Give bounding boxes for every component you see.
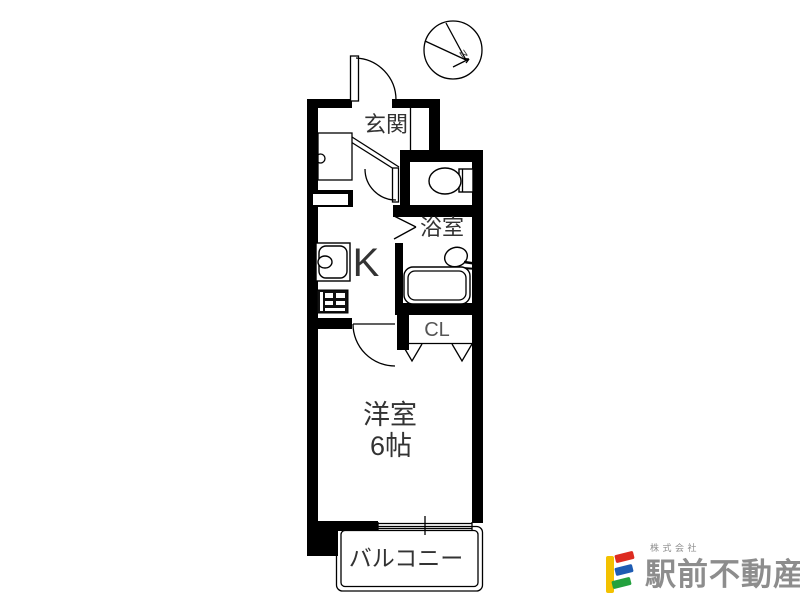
- entrance-step-line: [351, 137, 399, 171]
- room-door-arc: [353, 324, 395, 366]
- company-logo-mark: [606, 551, 635, 593]
- bathroom-door: [394, 216, 416, 239]
- company-logo: 株式会社 駅前不動産: [606, 542, 800, 593]
- wall-counter-inset: [313, 194, 348, 205]
- kitchen-sink-icon: [316, 243, 350, 281]
- entrance-label: 玄関: [364, 112, 408, 137]
- balcony-label: バルコニー: [349, 545, 464, 571]
- entrance-door-leaf: [351, 56, 359, 101]
- corridor-door-arc: [365, 169, 396, 200]
- company-prefix-label: 株式会社: [650, 542, 700, 553]
- room-door: [353, 324, 395, 366]
- kitchen-label: K: [353, 241, 380, 285]
- main-room-size-label: 6帖: [370, 431, 412, 461]
- compass-icon: N: [424, 21, 482, 79]
- floorplan-page: N: [0, 0, 800, 600]
- entrance-door-arc: [356, 58, 396, 100]
- corridor-door: [365, 168, 399, 202]
- floorplan-canvas: N: [0, 0, 800, 600]
- window: [378, 516, 472, 535]
- toilet-icon: [429, 168, 473, 194]
- washer-space-icon: [316, 133, 352, 180]
- closet-label: CL: [424, 319, 450, 341]
- bathtub-icon: [404, 267, 470, 304]
- main-room-label: 洋室: [363, 400, 417, 430]
- corridor-door-leaf: [393, 168, 399, 202]
- company-name-label: 駅前不動産: [645, 557, 800, 592]
- bathroom-label: 浴室: [420, 215, 464, 240]
- stove-icon: [317, 290, 348, 313]
- closet-folding-door: [399, 344, 472, 362]
- entrance-door: [351, 56, 397, 101]
